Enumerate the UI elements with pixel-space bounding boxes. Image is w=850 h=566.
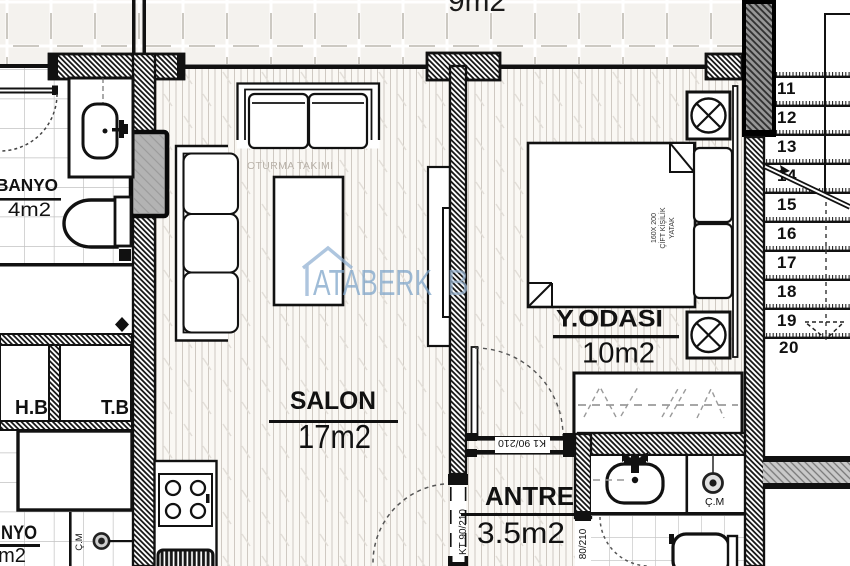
svg-text:17: 17 <box>777 253 797 272</box>
svg-text:T.B: T.B <box>101 397 129 419</box>
svg-text:K1 90/210: K1 90/210 <box>498 437 546 449</box>
svg-text:YATAK: YATAK <box>669 217 676 239</box>
svg-text:20: 20 <box>779 338 799 357</box>
svg-text:ATABERK: ATABERK <box>313 262 432 303</box>
svg-text:OTURMA TAKIMI: OTURMA TAKIMI <box>247 160 333 172</box>
svg-text:H.B: H.B <box>15 397 48 419</box>
svg-text:Ç.M: Ç.M <box>74 533 85 551</box>
svg-text:4m2: 4m2 <box>8 199 51 221</box>
svg-text:3.5m2: 3.5m2 <box>477 517 565 550</box>
svg-text:Ç.M: Ç.M <box>705 496 724 508</box>
svg-text:4m2: 4m2 <box>0 545 26 566</box>
svg-text:13: 13 <box>777 137 797 156</box>
svg-text:12: 12 <box>777 108 797 127</box>
svg-text:80/210: 80/210 <box>578 528 589 559</box>
svg-text:ÇİFT KİŞİLİK: ÇİFT KİŞİLİK <box>658 207 667 248</box>
svg-text:ANTRE: ANTRE <box>485 481 574 511</box>
svg-text:SALON: SALON <box>290 387 376 415</box>
svg-text:11: 11 <box>777 79 796 98</box>
svg-text:BANYO: BANYO <box>0 175 58 195</box>
svg-text:19: 19 <box>777 311 797 330</box>
svg-text:17m2: 17m2 <box>298 418 371 455</box>
svg-text:10m2: 10m2 <box>582 338 655 370</box>
svg-text:18: 18 <box>777 282 797 301</box>
svg-text:16: 16 <box>777 224 797 243</box>
svg-text:B: B <box>447 262 469 303</box>
svg-text:9m2: 9m2 <box>448 0 506 18</box>
svg-text:NYO: NYO <box>1 523 37 544</box>
svg-text:Y.ODASI: Y.ODASI <box>556 306 663 333</box>
svg-text:15: 15 <box>777 195 797 214</box>
svg-text:160X 200: 160X 200 <box>651 213 658 243</box>
